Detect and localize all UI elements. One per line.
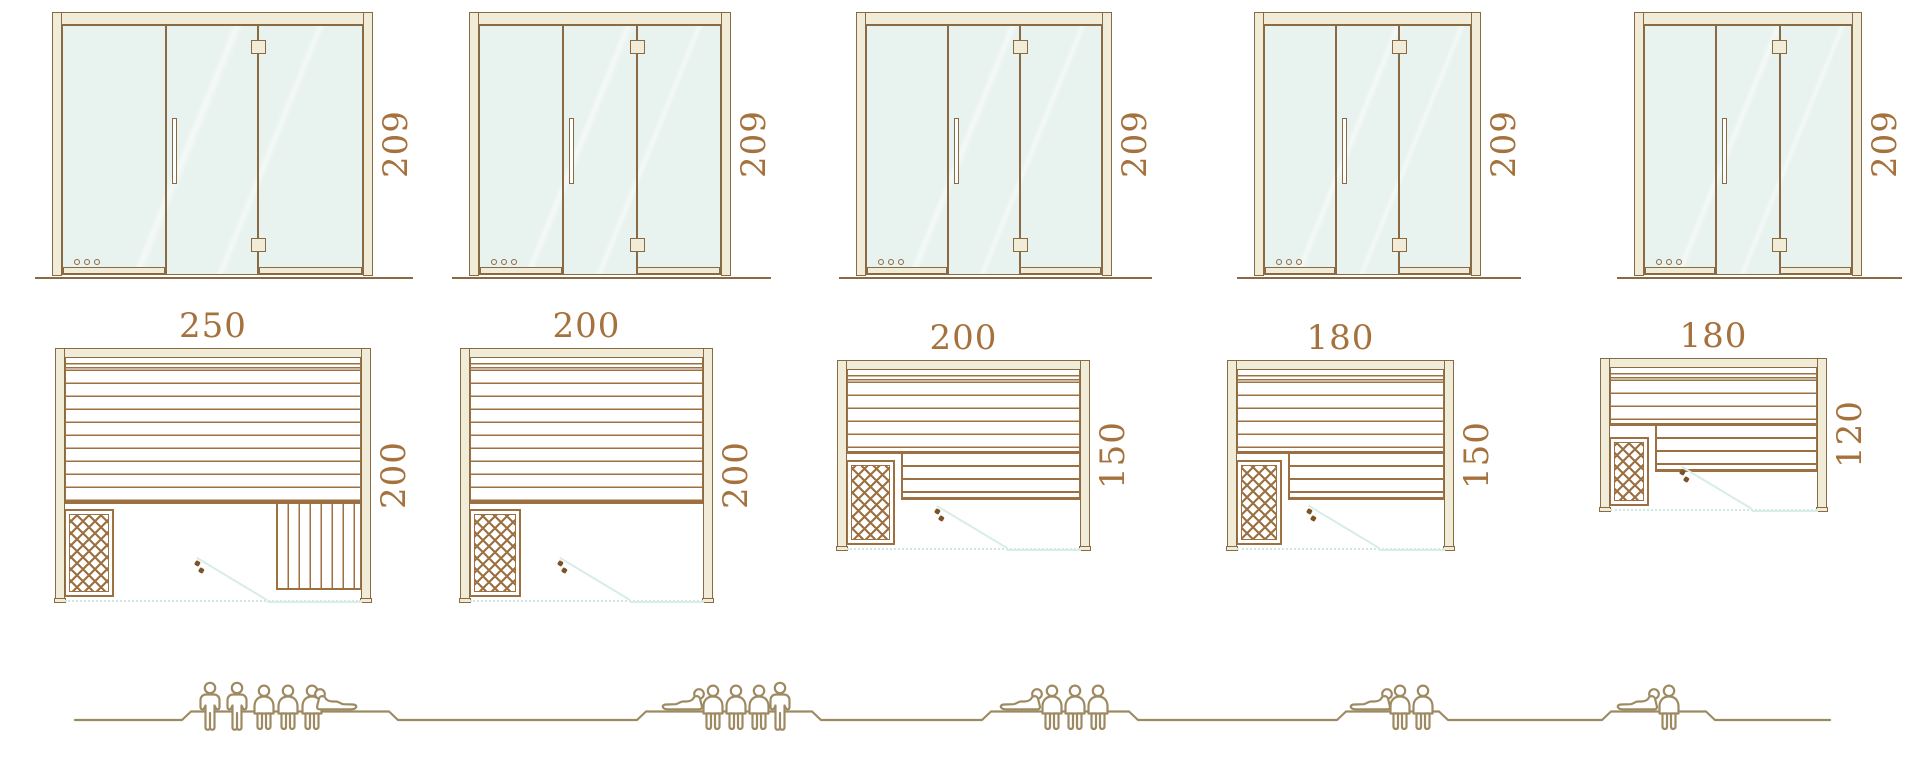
glass-bottom-sill — [1780, 267, 1851, 274]
plan-wall-left — [55, 348, 65, 601]
heater-lattice — [1241, 465, 1277, 540]
person-sitting-icon — [279, 686, 298, 729]
door-hinge-icon — [1772, 238, 1787, 252]
door-frame-left-post — [1254, 12, 1264, 276]
floor-plan — [837, 360, 1090, 549]
glass-mullion — [257, 26, 259, 274]
sauna-size-diagram: 209 250 200 — [0, 0, 1920, 764]
floor-plan — [1600, 358, 1827, 510]
upper-bench — [64, 357, 362, 504]
door-hinge-icon — [1772, 40, 1787, 54]
door-handle-dots — [194, 560, 200, 566]
door-frame-top-rail — [478, 12, 722, 25]
heater-lattice — [851, 465, 890, 540]
door-glass — [866, 25, 1102, 275]
glass-mullion — [636, 26, 638, 274]
door-swing-chord-line — [267, 601, 362, 603]
glass-bottom-sill — [1399, 267, 1470, 274]
person-lying-icon — [1351, 689, 1392, 709]
door-handle-dots — [1306, 508, 1312, 514]
height-dimension-label: 209 — [374, 12, 418, 276]
plan-wall-right — [361, 348, 371, 601]
vent-holes-icon — [1656, 259, 1682, 265]
door-hinge-icon — [630, 40, 645, 54]
plan-wall-top — [460, 348, 713, 358]
upper-bench — [469, 357, 704, 504]
door-hinge-icon — [251, 40, 266, 54]
door-handle-dots — [198, 567, 204, 573]
vent-holes-icon — [74, 259, 100, 265]
heater — [1609, 437, 1649, 506]
upper-bench — [1609, 367, 1818, 426]
door-handle-dots — [557, 560, 563, 566]
width-dimension-label: 180 — [1227, 318, 1454, 358]
door-swing-line — [1308, 505, 1379, 549]
ground-line — [35, 277, 413, 279]
wall-foot — [836, 546, 848, 551]
wall-foot — [1599, 507, 1611, 512]
glass-mullion — [947, 26, 949, 274]
door-handle-icon — [954, 118, 959, 184]
person-standing-icon — [771, 683, 790, 730]
glass-bottom-sill — [867, 267, 947, 274]
door-swing-line — [1681, 466, 1752, 510]
door-swing-line — [196, 557, 267, 601]
lower-bench — [1655, 426, 1818, 472]
glass-mullion — [562, 26, 564, 274]
ground-line — [839, 277, 1152, 279]
depth-dimension-label: 200 — [372, 348, 416, 601]
glass-bottom-sill — [1020, 267, 1101, 274]
ground-line — [1617, 277, 1902, 279]
plan-wall-top — [1600, 358, 1827, 368]
door-frame-right-post — [1102, 12, 1112, 276]
width-dimension-label: 200 — [837, 318, 1090, 358]
door-hinge-icon — [251, 238, 266, 252]
width-dimension-label: 180 — [1600, 316, 1827, 356]
floor-plan — [55, 348, 371, 601]
person-sitting-icon — [1414, 686, 1433, 729]
door-frame-left-post — [52, 12, 62, 276]
heater-lattice — [69, 514, 109, 592]
door-elevation — [469, 12, 731, 276]
door-frame-right-post — [1471, 12, 1481, 276]
person-standing-icon — [228, 683, 247, 730]
wall-foot — [1226, 546, 1238, 551]
door-handle-dots — [561, 567, 567, 573]
person-lying-icon — [663, 689, 704, 709]
door-hinge-icon — [1392, 238, 1407, 252]
plan-wall-right — [1080, 360, 1090, 549]
wall-foot — [459, 598, 471, 603]
door-swing-chord-line — [630, 601, 705, 603]
door-frame-left-post — [1634, 12, 1644, 276]
lower-bench — [1288, 454, 1445, 500]
door-swing-chord-line — [1007, 549, 1082, 551]
glass-mullion — [1779, 26, 1781, 274]
door-handle-icon — [1342, 118, 1347, 184]
capacity-baseline — [75, 712, 1830, 721]
door-handle-dots — [934, 508, 940, 514]
door-elevation — [856, 12, 1112, 276]
door-hinge-icon — [630, 238, 645, 252]
door-swing-line — [936, 505, 1007, 549]
width-dimension-label: 200 — [460, 306, 713, 346]
heater — [846, 460, 895, 545]
person-standing-icon — [201, 683, 220, 730]
heater — [1236, 460, 1282, 545]
door-frame-left-post — [469, 12, 479, 276]
heater-lattice — [1614, 442, 1644, 501]
plan-wall-top — [1227, 360, 1454, 370]
height-dimension-label: 209 — [1482, 12, 1526, 276]
door-frame-left-post — [856, 12, 866, 276]
upper-bench — [1236, 369, 1445, 454]
glass-mullion — [1335, 26, 1337, 274]
person-sitting-icon — [750, 686, 769, 729]
door-handle-icon — [569, 118, 574, 184]
plan-wall-top — [837, 360, 1090, 370]
door-hinge-icon — [1392, 40, 1407, 54]
height-dimension-label: 209 — [1863, 12, 1907, 276]
person-lying-icon — [1618, 689, 1659, 709]
glass-bottom-sill — [637, 267, 720, 274]
door-handle-dots — [1683, 476, 1689, 482]
glass-bottom-sill — [1645, 267, 1715, 274]
depth-dimension-label: 120 — [1828, 358, 1872, 510]
glass-bottom-sill — [1265, 267, 1335, 274]
depth-dimension-label: 150 — [1091, 360, 1135, 549]
door-frame-top-rail — [1263, 12, 1472, 25]
door-glass — [62, 25, 363, 275]
lower-bench — [901, 454, 1081, 500]
person-sitting-icon — [1660, 686, 1679, 729]
person-sitting-icon — [727, 686, 746, 729]
glass-mullion — [165, 26, 167, 274]
plan-wall-left — [1600, 358, 1610, 510]
door-handle-icon — [172, 118, 177, 184]
door-elevation — [1634, 12, 1862, 276]
door-frame-top-rail — [865, 12, 1103, 25]
heater-lattice — [474, 514, 516, 592]
heater — [469, 509, 521, 597]
vent-holes-icon — [878, 259, 904, 265]
door-handle-icon — [1722, 118, 1727, 184]
door-frame-right-post — [363, 12, 373, 276]
door-swing-chord-line — [1752, 510, 1818, 512]
door-handle-dots — [1310, 515, 1316, 521]
glass-bottom-sill — [63, 267, 165, 274]
door-hinge-icon — [1013, 40, 1028, 54]
glass-mullion — [1019, 26, 1021, 274]
door-glass — [1264, 25, 1471, 275]
vent-holes-icon — [491, 259, 517, 265]
person-sitting-icon — [1089, 686, 1108, 729]
plan-wall-left — [1227, 360, 1237, 549]
floor-plan — [1227, 360, 1454, 549]
plan-wall-right — [703, 348, 713, 601]
door-frame-top-rail — [1643, 12, 1853, 25]
person-sitting-icon — [1066, 686, 1085, 729]
person-sitting-icon — [704, 686, 723, 729]
door-glass — [479, 25, 721, 275]
depth-dimension-label: 150 — [1455, 360, 1499, 549]
person-lying-icon — [315, 689, 356, 709]
person-sitting-icon — [1043, 686, 1062, 729]
height-dimension-label: 209 — [1113, 12, 1157, 276]
door-swing-line — [559, 557, 630, 601]
plan-wall-left — [837, 360, 847, 549]
corner-bench — [276, 504, 362, 590]
door-frame-right-post — [1852, 12, 1862, 276]
vent-holes-icon — [1276, 259, 1302, 265]
depth-dimension-label: 200 — [714, 348, 758, 601]
person-sitting-icon — [303, 686, 322, 729]
door-handle-dots — [1679, 469, 1685, 475]
door-swing-chord-line — [1379, 549, 1445, 551]
wall-foot — [54, 598, 66, 603]
door-elevation — [1254, 12, 1481, 276]
height-dimension-label: 209 — [732, 12, 776, 276]
glass-mullion — [1715, 26, 1717, 274]
plan-wall-top — [55, 348, 371, 358]
glass-mullion — [1398, 26, 1400, 274]
width-dimension-label: 250 — [55, 306, 371, 346]
glass-bottom-sill — [259, 267, 362, 274]
upper-bench — [846, 369, 1081, 454]
person-sitting-icon — [1391, 686, 1410, 729]
plan-wall-right — [1444, 360, 1454, 549]
person-lying-icon — [1001, 689, 1042, 709]
person-sitting-icon — [255, 686, 274, 729]
door-frame-right-post — [721, 12, 731, 276]
heater — [64, 509, 114, 597]
door-handle-dots — [938, 515, 944, 521]
plan-wall-right — [1817, 358, 1827, 510]
door-elevation — [52, 12, 373, 276]
floor-plan — [460, 348, 713, 601]
door-hinge-icon — [1013, 238, 1028, 252]
ground-line — [452, 277, 771, 279]
door-frame-top-rail — [61, 12, 364, 25]
ground-line — [1237, 277, 1521, 279]
plan-wall-left — [460, 348, 470, 601]
door-glass — [1644, 25, 1852, 275]
glass-bottom-sill — [480, 267, 562, 274]
